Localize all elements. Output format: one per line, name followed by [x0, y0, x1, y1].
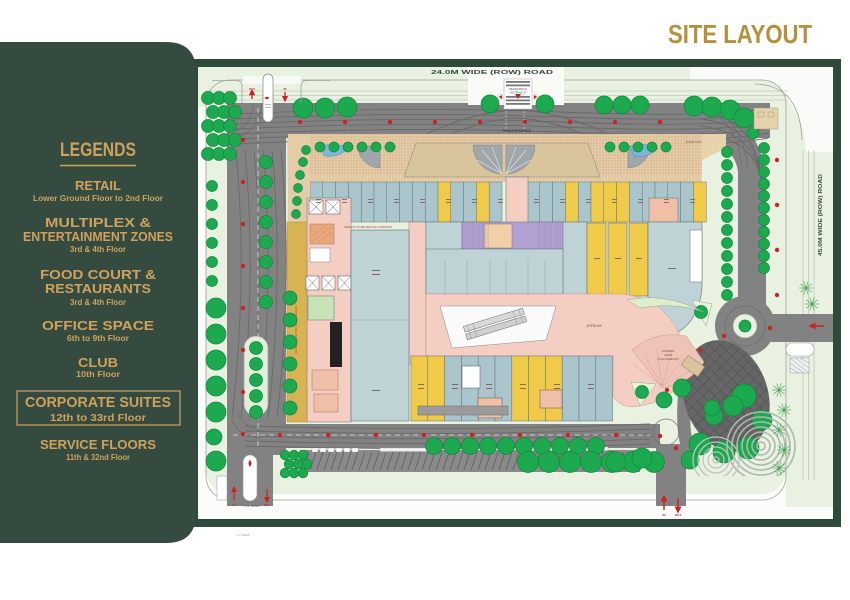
svg-text:FOOD COURT &: FOOD COURT &: [40, 267, 156, 282]
svg-text:OUT: OUT: [675, 513, 682, 517]
svg-text:IN: IN: [284, 87, 287, 91]
svg-text:ATRIUM: ATRIUM: [586, 323, 601, 328]
svg-text:FOOD CITY: FOOD CITY: [686, 140, 702, 144]
svg-text:CORPORATE SUITES: CORPORATE SUITES: [25, 394, 171, 411]
svg-text:24.0M WIDE (ROW) ROAD: 24.0M WIDE (ROW) ROAD: [431, 70, 553, 76]
svg-text:OFFICE SPACE: OFFICE SPACE: [42, 318, 154, 333]
svg-text:ENTRANCE: ENTRANCE: [510, 91, 526, 95]
svg-text:11th & 32nd Floor: 11th & 32nd Floor: [66, 452, 131, 462]
svg-text:12th to 33rd Floor: 12th to 33rd Floor: [50, 412, 146, 424]
svg-text:MULTIPLEX &: MULTIPLEX &: [45, 215, 151, 230]
svg-text:(COLOSSEUM): (COLOSSEUM): [657, 357, 678, 361]
svg-text:SITE LAYOUT: SITE LAYOUT: [668, 19, 812, 49]
svg-text:RETAIL: RETAIL: [75, 178, 121, 193]
svg-text:IN: IN: [663, 513, 666, 517]
svg-text:3rd & 4th Floor: 3rd & 4th Floor: [70, 244, 127, 254]
svg-text:ENTERTAINMENT ZONES: ENTERTAINMENT ZONES: [23, 229, 173, 244]
svg-text:OUT: OUT: [264, 503, 271, 507]
svg-text:CLUB: CLUB: [78, 355, 118, 370]
svg-text:Lower Ground Floor to 2nd Floo: Lower Ground Floor to 2nd Floor: [33, 193, 164, 203]
svg-text:IN: IN: [233, 503, 236, 507]
svg-text:LEGENDS: LEGENDS: [60, 140, 136, 161]
svg-text:RESTAURANTS: RESTAURANTS: [45, 281, 151, 296]
svg-text:L.G. RAMP: L.G. RAMP: [244, 504, 259, 508]
svg-text:OUT: OUT: [249, 87, 255, 91]
svg-text:ANCHOR STORE SERVICE CORRIDOR: ANCHOR STORE SERVICE CORRIDOR: [344, 225, 392, 229]
svg-text:10th Floor: 10th Floor: [76, 369, 121, 379]
svg-text:6th to 9th Floor: 6th to 9th Floor: [67, 333, 130, 343]
svg-text:SERVICE FLOORS: SERVICE FLOORS: [40, 437, 156, 452]
svg-text:L.G. RAMP: L.G. RAMP: [236, 533, 249, 537]
svg-text:45.0M WIDE (ROW) ROAD: 45.0M WIDE (ROW) ROAD: [818, 174, 824, 256]
svg-text:MAIN ENTRANCE: MAIN ENTRANCE: [503, 129, 532, 133]
svg-text:3rd & 4th Floor: 3rd & 4th Floor: [70, 297, 127, 307]
